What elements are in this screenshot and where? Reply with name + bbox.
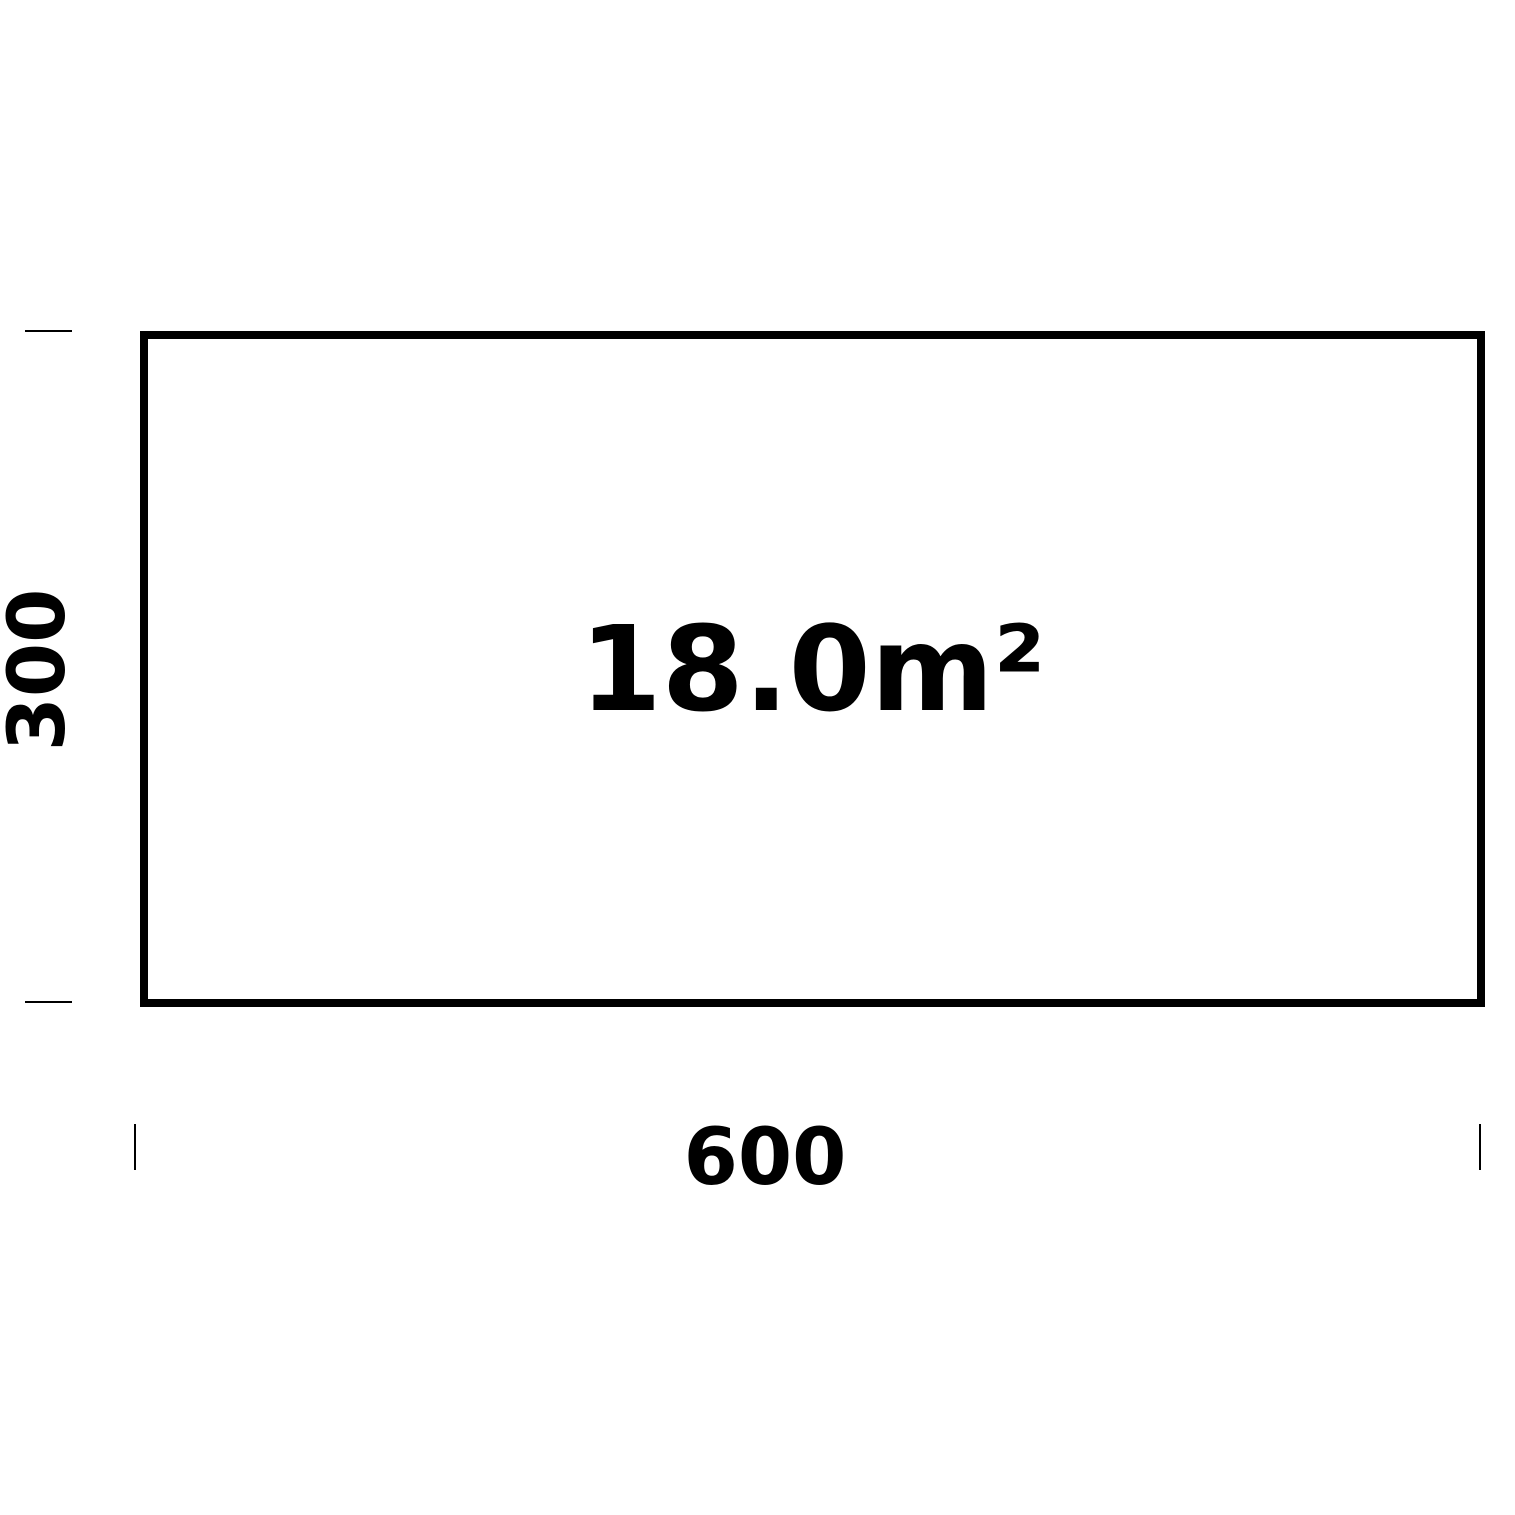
width-dimension-label: 600 (684, 1119, 847, 1197)
width-dimension-tick-left (134, 1124, 136, 1170)
height-dimension-label: 300 (0, 589, 77, 752)
height-dimension-tick-top (25, 330, 72, 332)
width-dimension-tick-right (1479, 1124, 1481, 1170)
height-dimension-tick-bottom (25, 1001, 72, 1003)
dimension-diagram-canvas: 18.0m² 300 600 (0, 0, 1515, 1515)
room-outline-rectangle: 18.0m² (140, 331, 1485, 1007)
room-area-label: 18.0m² (580, 610, 1046, 728)
